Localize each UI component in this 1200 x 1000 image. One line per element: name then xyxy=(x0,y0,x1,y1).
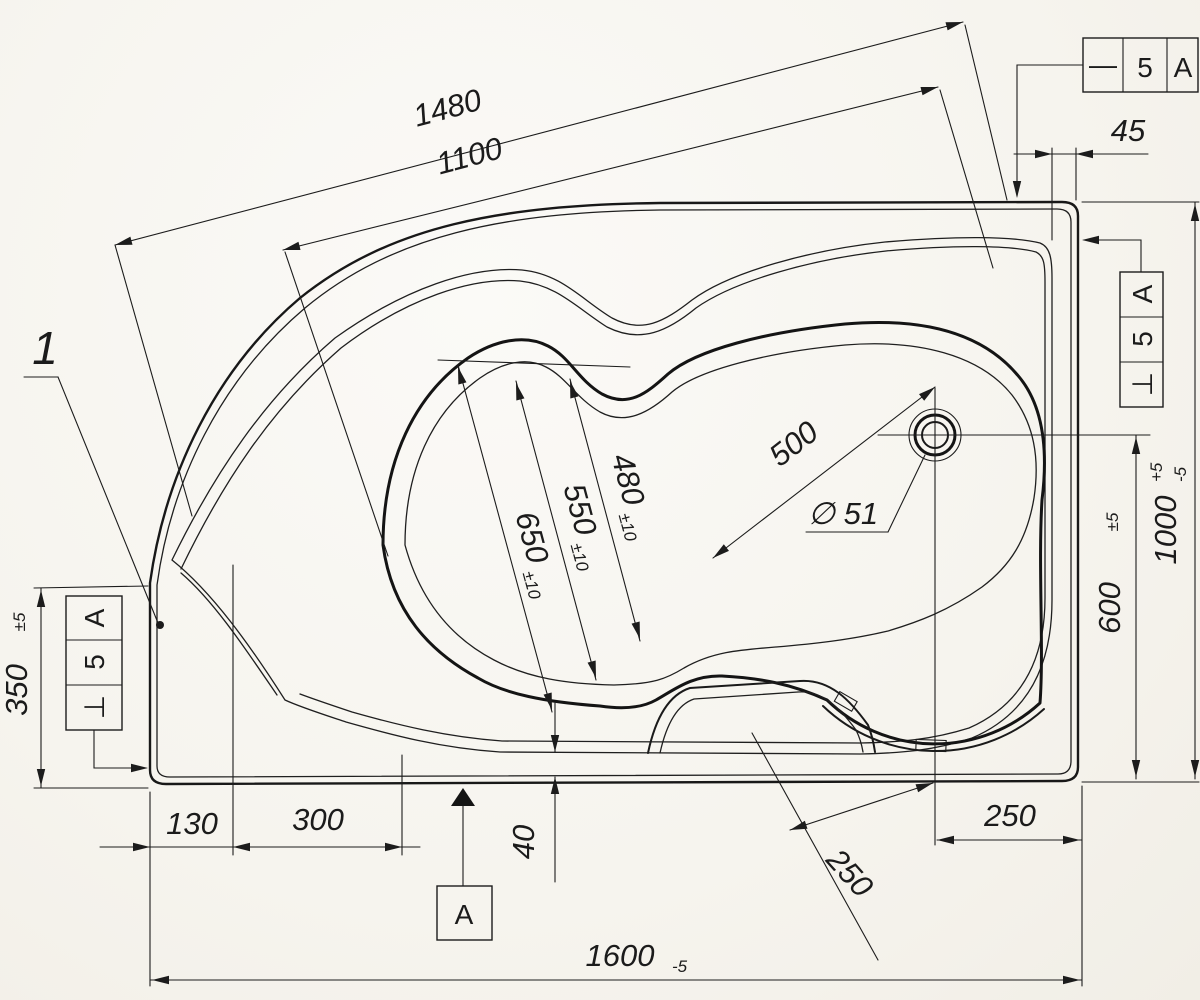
section-a-letter: A xyxy=(455,899,474,930)
dim-text-45: 45 xyxy=(1111,113,1146,148)
dimension-arrowhead xyxy=(1132,760,1140,777)
feature-frame-top-right: — 5 A xyxy=(1083,38,1198,92)
dim-text-650: 650 xyxy=(509,508,556,567)
diam51-leader xyxy=(888,455,925,532)
frame-right-symbol: ⊥ xyxy=(1127,372,1158,396)
ext-line-350-top xyxy=(34,586,148,588)
feature-frame-left: A 5 ⊥ xyxy=(66,596,122,730)
dimension-arrowhead xyxy=(1063,836,1080,844)
dim-line-250-diagonal xyxy=(790,783,933,830)
dimension-arrowhead xyxy=(283,242,301,250)
dim-text-650-group: 650 ±10 xyxy=(504,508,565,602)
rim-inner-edge-offset xyxy=(181,247,1045,743)
dimension-arrowhead xyxy=(588,660,596,678)
ext-line-basin-tangent xyxy=(438,360,630,367)
frame-left-datum: A xyxy=(79,608,110,627)
leader-frame-right xyxy=(1084,240,1141,272)
dimension-arrowhead xyxy=(570,381,578,399)
dimension-arrowhead xyxy=(551,777,559,794)
dimension-arrowhead xyxy=(1035,150,1052,158)
frame-right-datum: A xyxy=(1127,284,1158,303)
dim-line-1100 xyxy=(283,87,938,250)
dimension-arrowhead xyxy=(133,843,150,851)
dim-text-550: 550 xyxy=(557,480,604,539)
ext-line-250-diagonal xyxy=(752,733,878,960)
dimension-arrowhead xyxy=(1132,437,1140,454)
dim-text-40: 40 xyxy=(506,825,541,859)
ext-line-1480-right xyxy=(965,25,1007,200)
dim-tol-600: ±5 xyxy=(1103,512,1122,531)
ext-line-1100-left xyxy=(285,252,388,556)
ext-line-1100-right xyxy=(940,90,993,268)
drain-diameter-label: ∅ 51 xyxy=(808,496,878,531)
item-number-label: 1 xyxy=(32,322,58,374)
dimension-arrowhead xyxy=(152,976,169,984)
bathtub-technical-drawing: — 5 A A 5 ⊥ A 5 ⊥ 1480 1100 45 350 ±5 13… xyxy=(0,0,1200,1000)
dimension-lines xyxy=(24,22,1199,986)
feature-frame-right: A 5 ⊥ xyxy=(1120,272,1163,407)
dim-text-1000-group: 1000 +5 -5 xyxy=(1147,462,1190,564)
dimension-arrowhead xyxy=(37,769,45,786)
leader-frame-left xyxy=(94,730,146,768)
drawing-sheet: — 5 A A 5 ⊥ A 5 ⊥ 1480 1100 45 350 ±5 13… xyxy=(0,0,1200,1000)
dimension-arrowhead xyxy=(544,692,552,710)
frame-left-symbol: ⊥ xyxy=(79,695,110,719)
dimension-arrowhead xyxy=(1013,181,1021,198)
dimension-arrowhead xyxy=(516,383,524,401)
dim-text-250-right: 250 xyxy=(983,798,1036,833)
leader-frame-top-right xyxy=(1017,65,1083,196)
dimension-arrowhead xyxy=(551,735,559,752)
basin-contour xyxy=(383,322,1044,743)
frame-top-right-symbol: — xyxy=(1089,49,1117,80)
dim-text-500: 500 xyxy=(762,414,824,473)
frame-top-right-datum: A xyxy=(1174,52,1193,83)
step-bump-inner xyxy=(660,692,863,753)
dimension-arrowhead xyxy=(920,87,938,95)
dimension-arrowhead xyxy=(233,843,250,851)
dim-text-1600: 1600 xyxy=(586,938,655,973)
dim-tol-650: ±10 xyxy=(519,569,545,602)
dimension-arrowhead xyxy=(937,836,954,844)
dim-tol-350: ±5 xyxy=(10,612,29,631)
basin-floor-edge xyxy=(405,344,1036,685)
label-1-leader-dot xyxy=(156,621,164,629)
dimension-arrowhead xyxy=(37,590,45,607)
dim-text-600: 600 xyxy=(1092,582,1127,634)
dim-text-250-diagonal: 250 xyxy=(819,841,880,904)
dim-text-480: 480 xyxy=(605,450,652,509)
frame-left-value: 5 xyxy=(79,654,110,670)
dim-tol-1600: -5 xyxy=(672,957,688,976)
dim-text-550-group: 550 ±10 xyxy=(552,480,613,574)
dimension-arrowhead xyxy=(458,367,466,385)
dim-text-350: 350 xyxy=(0,664,34,716)
frame-top-right-value: 5 xyxy=(1137,52,1153,83)
tub-rim-inner-contour xyxy=(172,238,1052,754)
rim-inner-edge xyxy=(172,238,1052,754)
frame-right-value: 5 xyxy=(1127,331,1158,347)
dimension-arrowhead xyxy=(713,544,729,558)
datum-a-triangle xyxy=(451,788,475,806)
dim-text-300: 300 xyxy=(292,802,344,837)
ext-line-1480-left xyxy=(115,245,192,516)
dimension-arrowhead xyxy=(632,621,640,639)
dimension-arrowhead xyxy=(1082,236,1099,244)
dimension-arrowhead xyxy=(1063,976,1080,984)
dim-text-480-group: 480 ±10 xyxy=(600,450,661,544)
dimension-arrowhead xyxy=(131,764,148,772)
label-1-leader xyxy=(58,377,158,623)
dim-line-1480 xyxy=(115,22,963,245)
dimension-arrowhead xyxy=(790,821,807,830)
dimension-arrowhead xyxy=(1191,760,1199,777)
basin-edge xyxy=(383,322,1044,743)
corner-overflow-arc xyxy=(181,573,277,695)
dim-text-130: 130 xyxy=(166,806,218,841)
dim-tol-550: ±10 xyxy=(567,541,593,574)
dim-text-1100: 1100 xyxy=(433,130,506,181)
dim-tol-1000-minus: -5 xyxy=(1171,466,1190,482)
dim-text-1480: 1480 xyxy=(409,82,485,134)
dimension-arrowhead xyxy=(945,22,963,30)
dimension-arrowhead xyxy=(1191,204,1199,221)
dim-tol-1000-plus: +5 xyxy=(1147,462,1166,482)
dim-text-1000: 1000 xyxy=(1148,496,1183,565)
dimension-arrowhead xyxy=(916,783,933,792)
dim-tol-480: ±10 xyxy=(615,511,641,544)
dimension-arrowhead xyxy=(919,387,935,401)
dimension-arrowhead xyxy=(1076,150,1093,158)
dimension-arrowhead xyxy=(115,237,133,245)
dimension-texts: 1480 1100 45 350 ±5 130 300 40 1600 -5 6… xyxy=(0,82,1190,976)
dimension-arrowhead xyxy=(385,843,402,851)
